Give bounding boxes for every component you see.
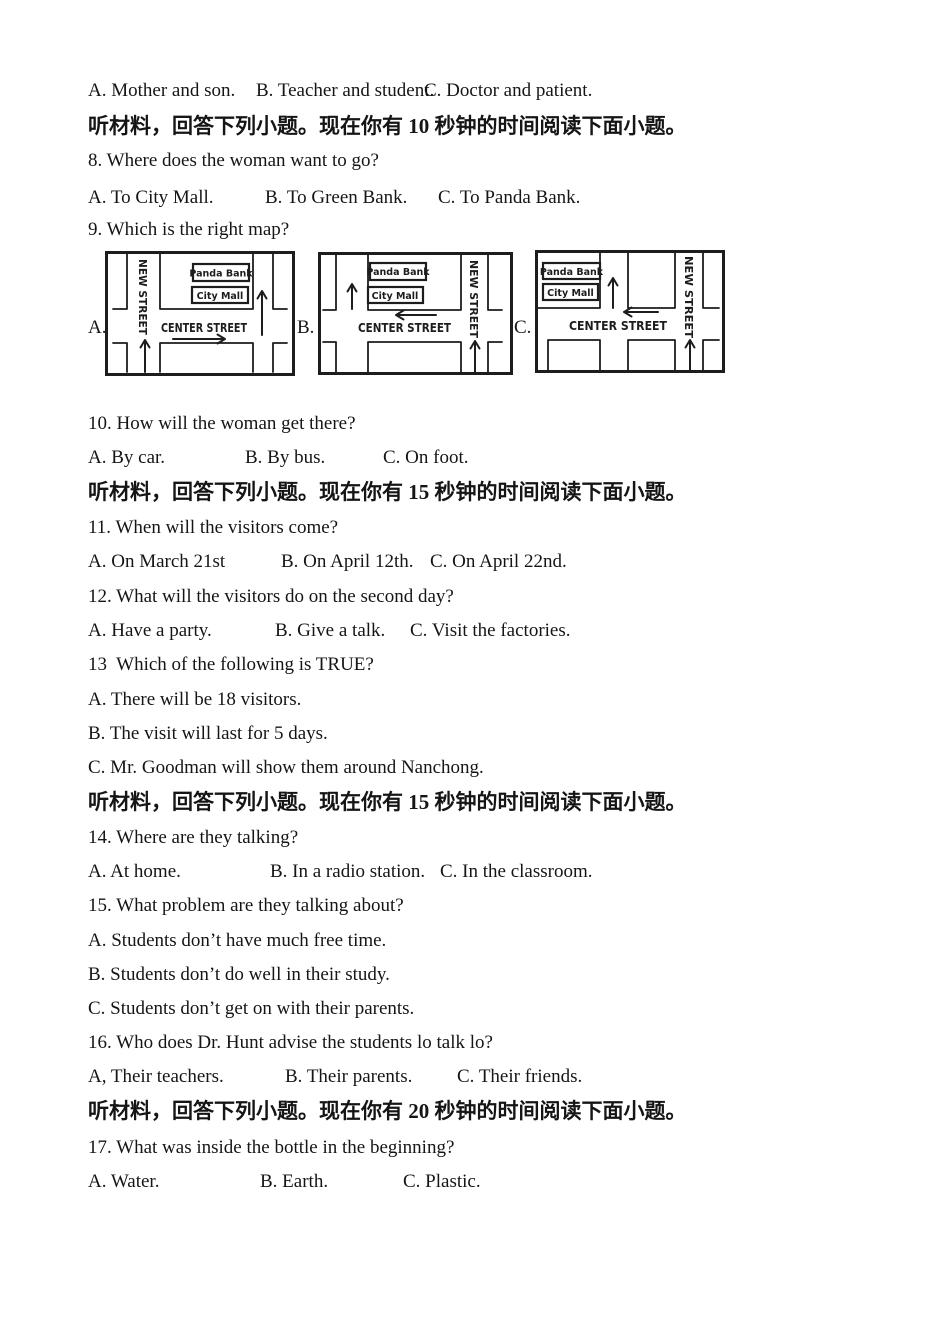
q16-options-row: A, Their teachers. B. Their parents. C. … xyxy=(0,1066,950,1088)
q16-option-a: A, Their teachers. xyxy=(88,1066,224,1088)
q17-option-a: A. Water. xyxy=(88,1171,159,1193)
q14-option-a: A. At home. xyxy=(88,861,181,883)
exam-page: A. Mother and son. B. Teacher and studen… xyxy=(0,0,950,1344)
map-a-center-street-label: CENTER STREET xyxy=(161,320,247,335)
q15-option-c: C. Students don’t get on with their pare… xyxy=(88,998,414,1020)
q8-options-row: A. To City Mall. B. To Green Bank. C. To… xyxy=(0,187,950,209)
section-header-2: 听材料，回答下列小题。现在你有 15 秒钟的时间阅读下面小题。 xyxy=(88,478,687,506)
map-b-new-street-label: NEW STREET xyxy=(467,260,480,338)
question-13: 13 Which of the following is TRUE? xyxy=(88,654,374,676)
map-a-new-street-label: NEW STREET xyxy=(136,259,149,335)
q7-options-row: A. Mother and son. B. Teacher and studen… xyxy=(0,80,950,102)
map-c-up-arrow-middle xyxy=(609,278,618,308)
map-c-label: C. xyxy=(514,317,531,339)
q8-option-c: C. To Panda Bank. xyxy=(438,187,580,209)
map-b-label: B. xyxy=(297,317,314,339)
q11-option-a: A. On March 21st xyxy=(88,551,225,573)
map-c-up-arrow-right xyxy=(686,340,695,370)
map-a-up-arrow-right xyxy=(258,291,267,335)
map-c-city-mall-label: City Mall xyxy=(547,288,594,299)
question-8: 8. Where does the woman want to go? xyxy=(88,150,379,172)
q11-options-row: A. On March 21st B. On April 12th. C. On… xyxy=(0,551,950,573)
q17-options-row: A. Water. B. Earth. C. Plastic. xyxy=(0,1171,950,1193)
q13-option-b: B. The visit will last for 5 days. xyxy=(88,723,328,745)
q14-options-row: A. At home. B. In a radio station. C. In… xyxy=(0,861,950,883)
q13-option-c: C. Mr. Goodman will show them around Nan… xyxy=(88,757,484,779)
map-c-figure: Panda Bank City Mall NEW STREET CENTER S… xyxy=(535,250,725,373)
map-b-left-arrow-center-street xyxy=(396,311,436,320)
question-16: 16. Who does Dr. Hunt advise the student… xyxy=(88,1032,493,1054)
question-15: 15. What problem are they talking about? xyxy=(88,895,404,917)
q8-option-b: B. To Green Bank. xyxy=(265,187,407,209)
q12-options-row: A. Have a party. B. Give a talk. C. Visi… xyxy=(0,620,950,642)
q15-option-a: A. Students don’t have much free time. xyxy=(88,930,386,952)
map-b-figure: Panda Bank City Mall NEW STREET CENTER S… xyxy=(318,252,513,375)
q17-option-b: B. Earth. xyxy=(260,1171,328,1193)
q12-option-b: B. Give a talk. xyxy=(275,620,385,642)
map-c-panda-bank-label: Panda Bank xyxy=(540,267,604,278)
q13-option-a: A. There will be 18 visitors. xyxy=(88,689,301,711)
question-9: 9. Which is the right map? xyxy=(88,219,289,241)
question-12: 12. What will the visitors do on the sec… xyxy=(88,586,454,608)
q10-option-a: A. By car. xyxy=(88,447,165,469)
q10-options-row: A. By car. B. By bus. C. On foot. xyxy=(0,447,950,469)
q7-option-b: B. Teacher and student. xyxy=(256,80,434,102)
q7-option-a: A. Mother and son. xyxy=(88,80,235,102)
map-b-city-mall-label: City Mall xyxy=(372,291,419,302)
section-header-1: 听材料，回答下列小题。现在你有 10 秒钟的时间阅读下面小题。 xyxy=(88,112,687,140)
map-a-city-mall-label: City Mall xyxy=(197,291,244,302)
q14-option-c: C. In the classroom. xyxy=(440,861,593,883)
map-c-new-street-label: NEW STREET xyxy=(682,256,695,338)
q10-option-c: C. On foot. xyxy=(383,447,469,469)
q12-option-c: C. Visit the factories. xyxy=(410,620,571,642)
map-b-up-arrow-right xyxy=(471,341,480,372)
q14-option-b: B. In a radio station. xyxy=(270,861,425,883)
section-header-3: 听材料，回答下列小题。现在你有 15 秒钟的时间阅读下面小题。 xyxy=(88,788,687,816)
map-a-figure: Panda Bank City Mall NEW STREET CENTER S… xyxy=(105,251,295,376)
map-a-panda-bank-label: Panda Bank xyxy=(189,269,253,280)
question-10: 10. How will the woman get there? xyxy=(88,413,356,435)
map-c-center-street-label: CENTER STREET xyxy=(569,318,667,333)
q16-option-c: C. Their friends. xyxy=(457,1066,582,1088)
q8-option-a: A. To City Mall. xyxy=(88,187,214,209)
q11-option-b: B. On April 12th. xyxy=(281,551,413,573)
map-b-panda-bank-label: Panda Bank xyxy=(366,267,430,278)
q17-option-c: C. Plastic. xyxy=(403,1171,481,1193)
question-17: 17. What was inside the bottle in the be… xyxy=(88,1137,454,1159)
section-header-4: 听材料，回答下列小题。现在你有 20 秒钟的时间阅读下面小题。 xyxy=(88,1097,687,1125)
map-b-center-street-label: CENTER STREET xyxy=(358,320,451,335)
map-a-up-arrow-left xyxy=(141,340,150,372)
q12-option-a: A. Have a party. xyxy=(88,620,212,642)
q15-option-b: B. Students don’t do well in their study… xyxy=(88,964,390,986)
question-14: 14. Where are they talking? xyxy=(88,827,298,849)
q10-option-b: B. By bus. xyxy=(245,447,325,469)
q11-option-c: C. On April 22nd. xyxy=(430,551,567,573)
map-b-up-arrow-left xyxy=(348,284,357,309)
q16-option-b: B. Their parents. xyxy=(285,1066,412,1088)
question-11: 11. When will the visitors come? xyxy=(88,517,338,539)
q7-option-c: C. Doctor and patient. xyxy=(424,80,592,102)
map-a-label: A. xyxy=(88,317,106,339)
